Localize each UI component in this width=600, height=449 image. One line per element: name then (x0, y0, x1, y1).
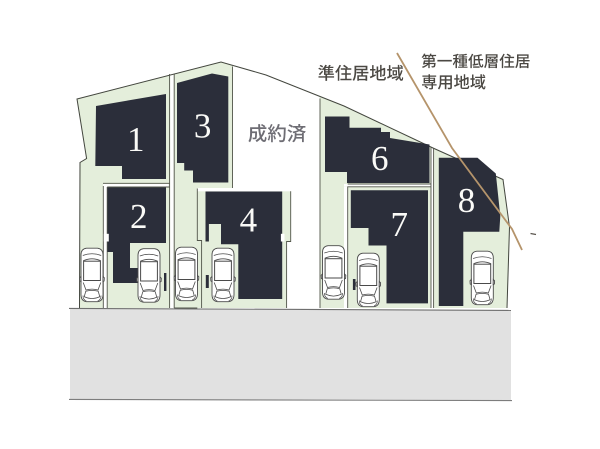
svg-text:3: 3 (194, 107, 212, 146)
svg-text:4: 4 (240, 201, 258, 240)
svg-text:1: 1 (127, 120, 145, 159)
svg-text:2: 2 (130, 197, 148, 236)
svg-text:8: 8 (458, 181, 476, 220)
svg-text:6: 6 (371, 139, 389, 178)
svg-text:7: 7 (391, 205, 409, 244)
